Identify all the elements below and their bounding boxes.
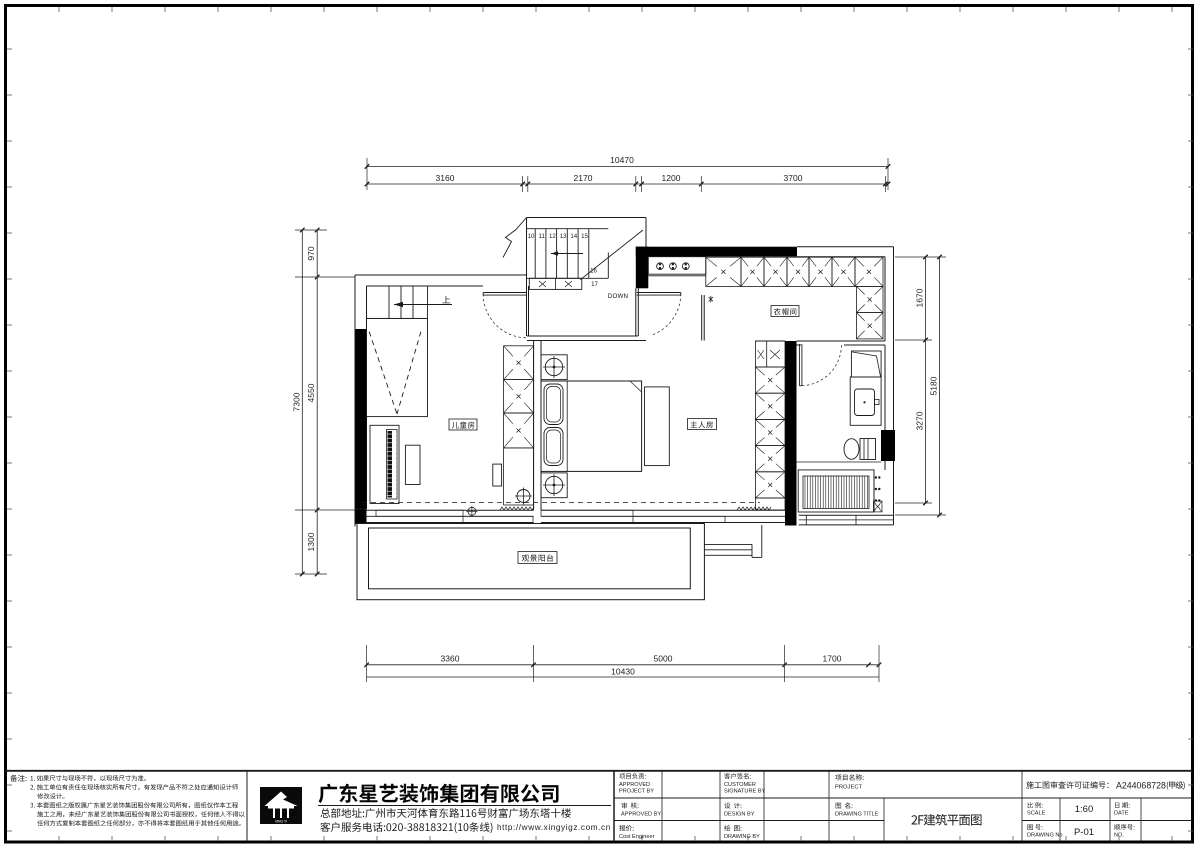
svg-text:DRAWING No: DRAWING No	[1027, 833, 1063, 839]
svg-text:10: 10	[528, 233, 535, 240]
svg-text:10470: 10470	[610, 155, 634, 165]
svg-text:1300: 1300	[306, 532, 316, 551]
svg-text:1:60: 1:60	[1075, 804, 1094, 815]
svg-text:1670: 1670	[915, 288, 925, 307]
svg-text:APPROVED BY: APPROVED BY	[621, 812, 661, 818]
svg-text:NO.: NO.	[1114, 833, 1124, 839]
svg-text:http://www.xingyigz.com.cn: http://www.xingyigz.com.cn	[497, 823, 611, 832]
svg-text:10430: 10430	[611, 667, 635, 677]
svg-text:3700: 3700	[784, 173, 803, 183]
svg-text:Cost Engineer: Cost Engineer	[619, 834, 655, 840]
svg-text:P-01: P-01	[1074, 827, 1094, 838]
svg-text:A244068728: A244068728	[1116, 781, 1166, 791]
svg-text:PROJECT BY: PROJECT BY	[619, 789, 654, 795]
svg-text:PROJECT: PROJECT	[835, 785, 863, 791]
svg-text:XING YI: XING YI	[275, 820, 287, 824]
svg-text:3160: 3160	[436, 173, 455, 183]
svg-text:3270: 3270	[915, 411, 925, 430]
svg-text:16: 16	[590, 268, 597, 275]
svg-text:13: 13	[560, 233, 567, 240]
svg-text:DESIGN BY: DESIGN BY	[724, 812, 755, 818]
svg-text:1700: 1700	[823, 654, 842, 664]
svg-text:17: 17	[591, 281, 598, 288]
svg-text:7300: 7300	[292, 392, 302, 411]
svg-text:5000: 5000	[654, 654, 673, 664]
svg-text:12: 12	[549, 233, 556, 240]
svg-text:CUSTOMER: CUSTOMER	[724, 782, 756, 788]
svg-text:5180: 5180	[929, 376, 939, 395]
svg-text:3360: 3360	[441, 654, 460, 664]
svg-text:DRAWING BY: DRAWING BY	[724, 834, 760, 840]
svg-text:SCALE: SCALE	[1027, 811, 1046, 817]
svg-text:DATE: DATE	[1114, 811, 1129, 817]
svg-text:970: 970	[306, 246, 316, 260]
svg-text:1200: 1200	[662, 173, 681, 183]
svg-text:11: 11	[539, 233, 546, 240]
svg-text:15: 15	[581, 233, 588, 240]
svg-text:SIGNATURE BY: SIGNATURE BY	[724, 789, 766, 795]
svg-text:14: 14	[570, 233, 577, 240]
svg-text:APPROVED: APPROVED	[619, 782, 650, 788]
svg-text:DRAWING TITLE: DRAWING TITLE	[835, 812, 879, 818]
svg-text:4550: 4550	[306, 383, 316, 402]
svg-text:2170: 2170	[574, 173, 593, 183]
svg-text:DOWN: DOWN	[608, 293, 628, 300]
